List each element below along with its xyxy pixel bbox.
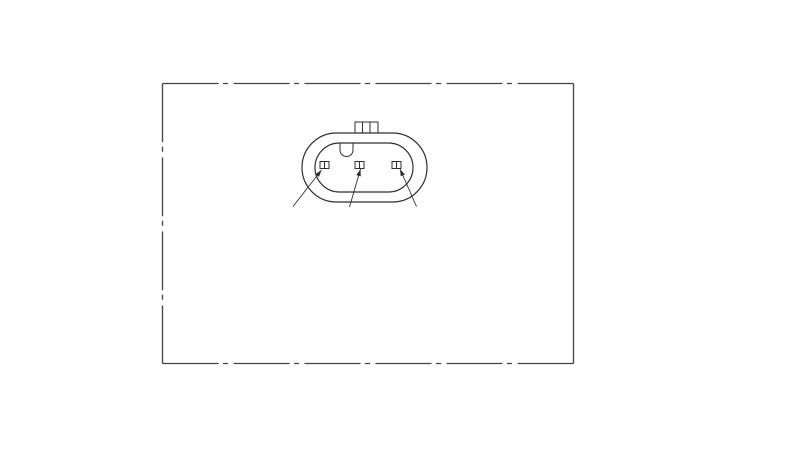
- connector-drawing-svg: [0, 0, 800, 451]
- keying-notch: [340, 144, 353, 157]
- leader-arrowhead-3: [400, 169, 405, 176]
- drawing-canvas: [0, 0, 800, 451]
- leader-arrowhead-2: [356, 169, 360, 176]
- latch-tab-outline: [355, 122, 378, 133]
